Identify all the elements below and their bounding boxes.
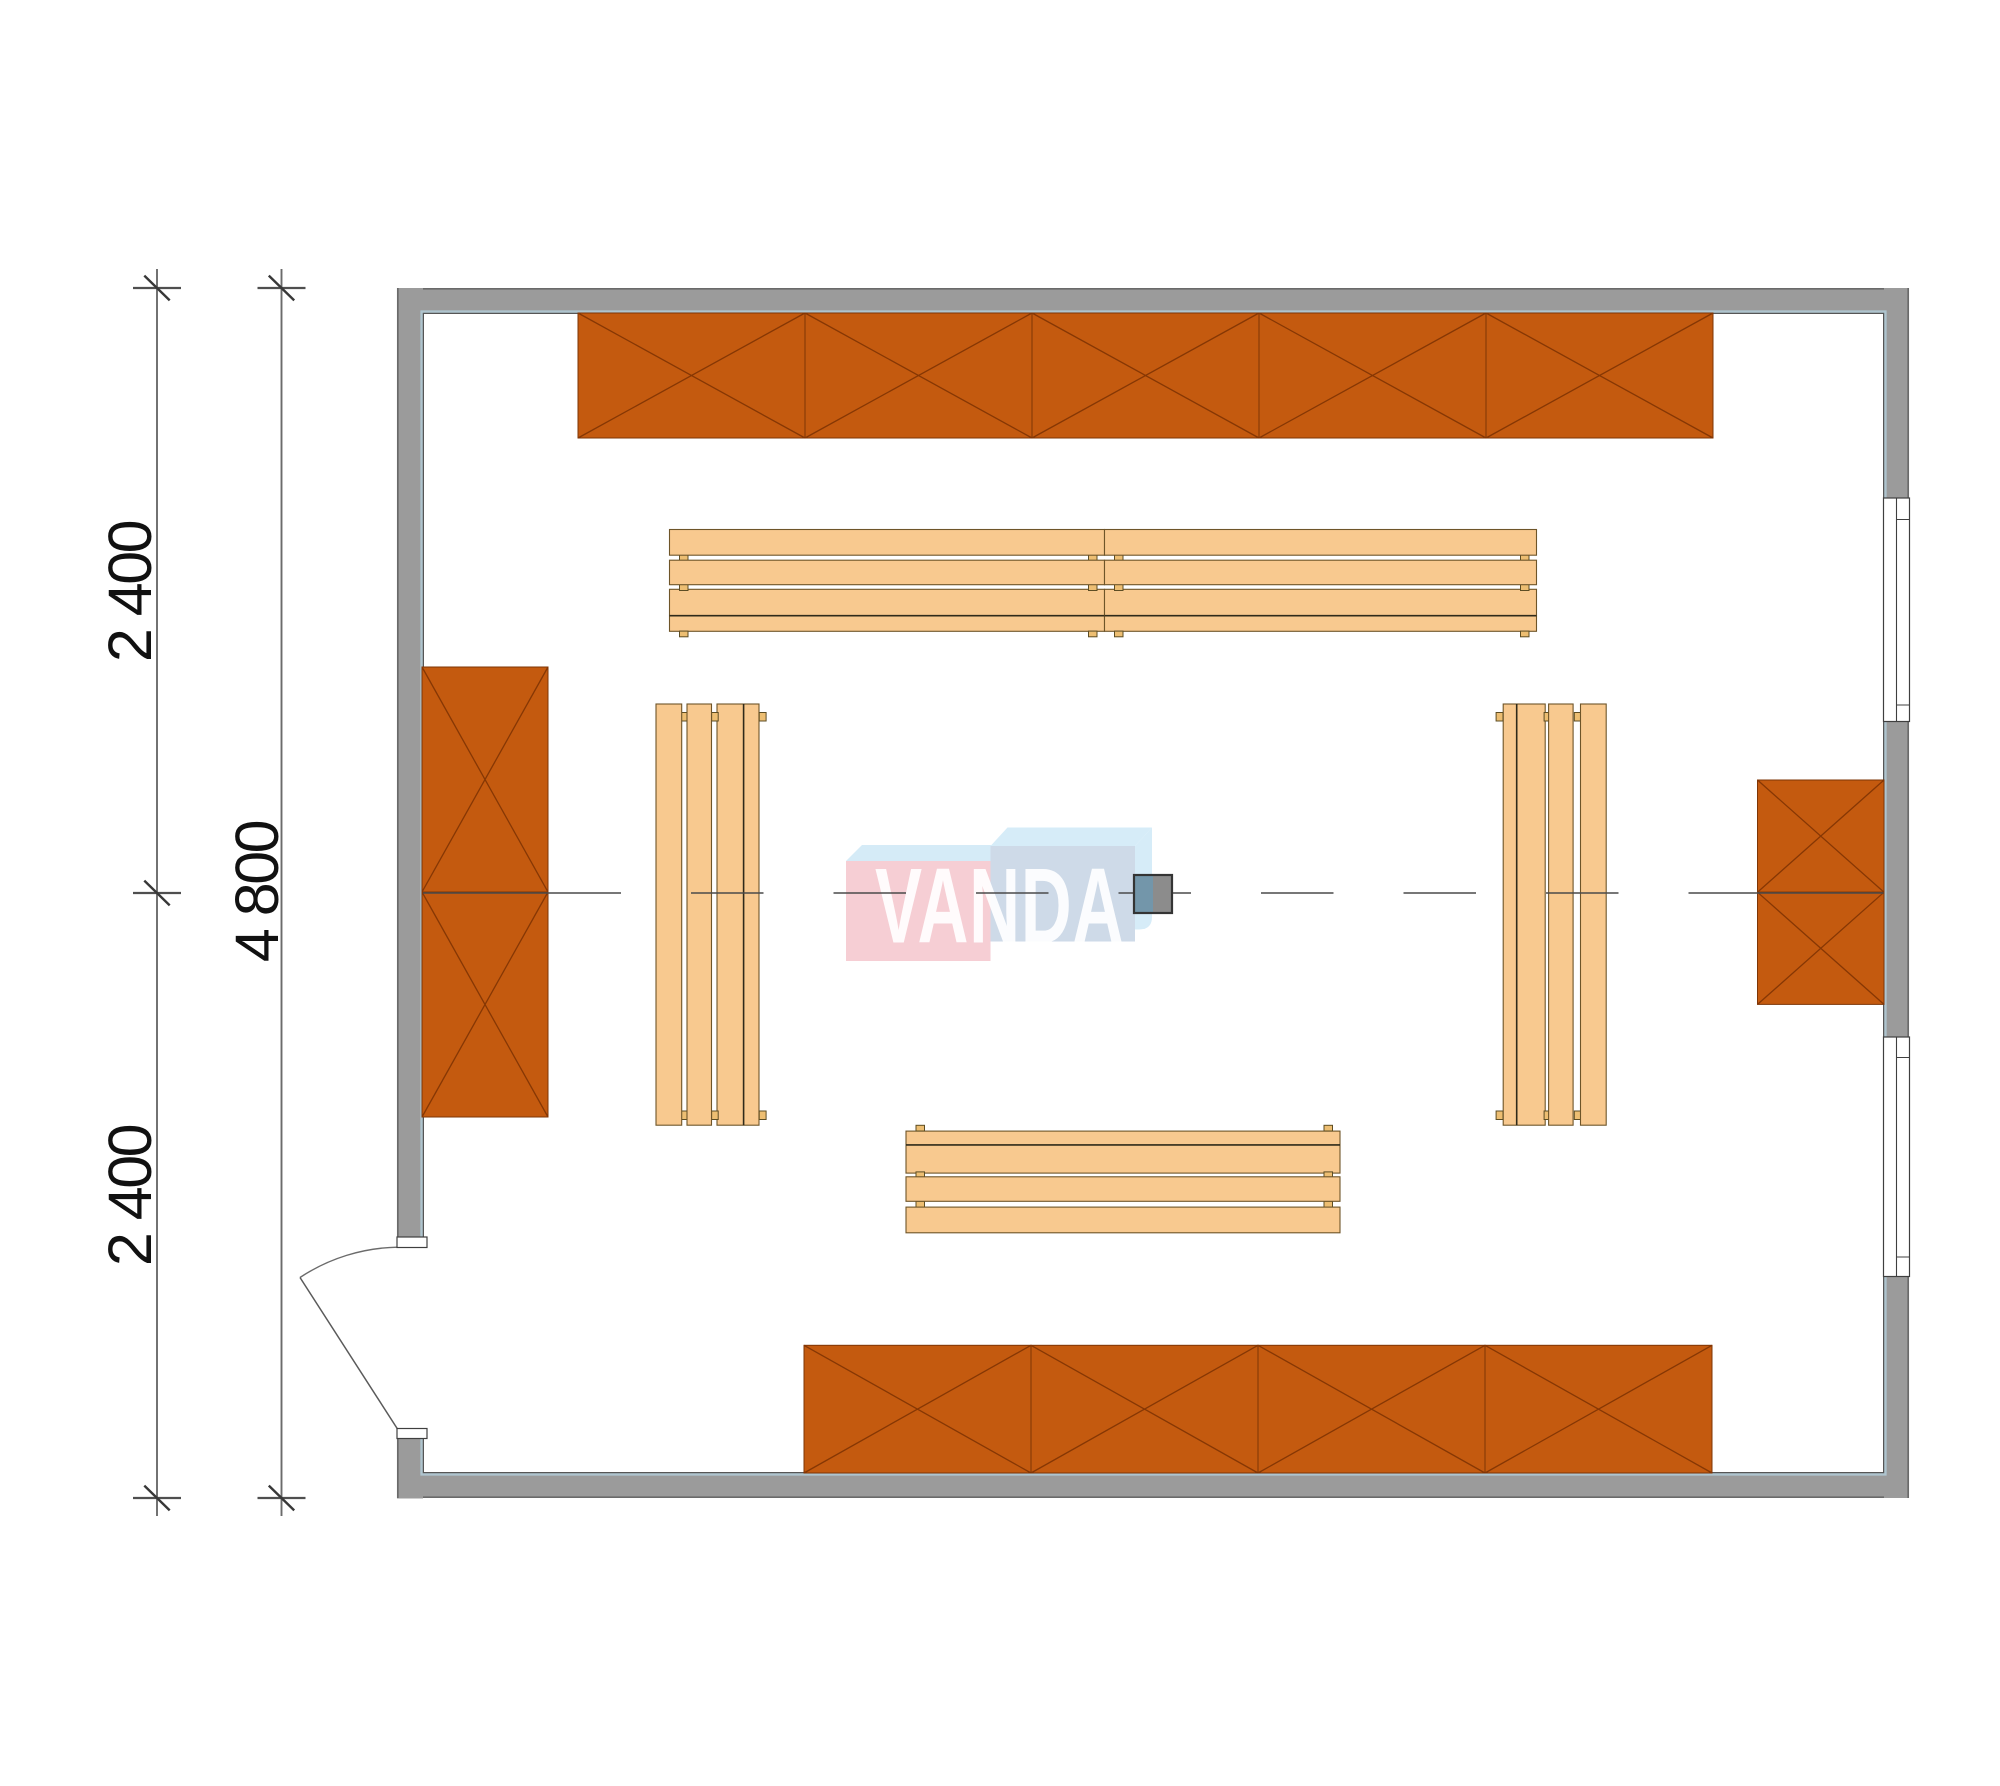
svg-text:2 400: 2 400 [96,521,164,662]
svg-text:VANDA: VANDA [875,847,1124,966]
svg-text:4 800: 4 800 [223,821,291,962]
svg-text:2 400: 2 400 [96,1125,164,1266]
